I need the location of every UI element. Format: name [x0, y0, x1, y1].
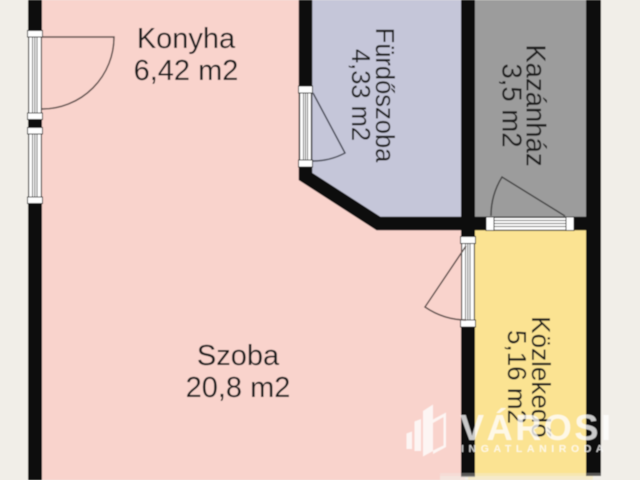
svg-text:INGATLANIRODA: INGATLANIRODA — [461, 443, 608, 455]
svg-text:VÁROSI: VÁROSI — [460, 407, 614, 448]
svg-text:20,8 m2: 20,8 m2 — [186, 372, 291, 404]
svg-text:3,5 m2: 3,5 m2 — [497, 63, 528, 147]
svg-text:4,33 m2: 4,33 m2 — [346, 49, 374, 141]
svg-text:6,42 m2: 6,42 m2 — [134, 55, 239, 87]
svg-text:Konyha: Konyha — [137, 23, 236, 55]
svg-text:Szoba: Szoba — [197, 340, 280, 372]
